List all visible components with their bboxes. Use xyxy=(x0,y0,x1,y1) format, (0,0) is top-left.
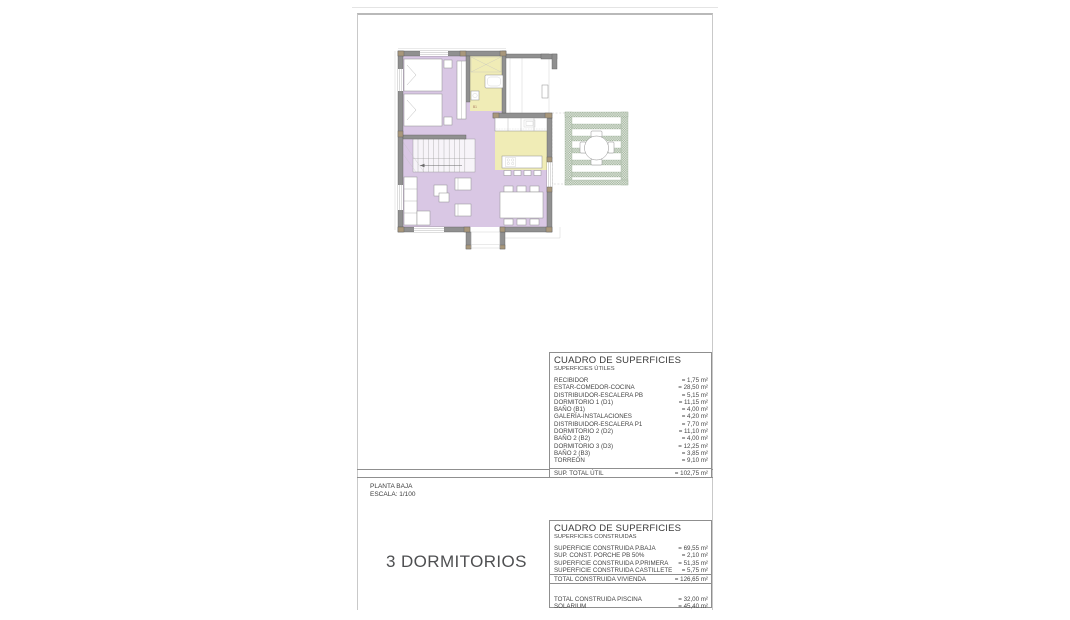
row-value: = 4,00 m² xyxy=(682,406,708,413)
row-label: ESTAR-COMEDOR-COCINA xyxy=(554,384,635,391)
nightstand-icon xyxy=(444,117,452,125)
bedroom-doorway-floor xyxy=(466,102,470,111)
total-value: = 102,75 m² xyxy=(675,470,708,477)
table-rows: SUPERFICIE CONSTRUIDA P.BAJA = 69,55 m² … xyxy=(554,545,708,574)
table-subtitle: SUPERFICIES CONSTRUIDAS xyxy=(554,534,708,541)
table-row: BAÑO 2 (B2) = 4,00 m² xyxy=(554,435,708,442)
row-value: = 7,70 m² xyxy=(682,421,708,428)
table-title: CUADRO DE SUPERFICIES xyxy=(554,524,708,534)
bathtub-icon xyxy=(485,75,503,88)
table-row: DISTRIBUIDOR-ESCALERA PB = 5,15 m² xyxy=(554,392,708,399)
row-value: = 5,15 m² xyxy=(682,392,708,399)
table-row: SUP. CONST. PORCHE PB 50% = 2,10 m² xyxy=(554,552,708,559)
row-value: = 12,25 m² xyxy=(678,443,708,450)
stool-icon xyxy=(514,171,521,176)
row-label: DORMITORIO 1 (D1) xyxy=(554,399,613,406)
row-label: SUPERFICIE CONSTRUIDA CASTILLETE xyxy=(554,567,672,574)
row-value: = 4,20 m² xyxy=(682,413,708,420)
row-value: = 4,00 m² xyxy=(682,435,708,442)
table-row: BAÑO (B1) = 4,00 m² xyxy=(554,406,708,413)
sheet-outer-edge xyxy=(352,7,718,8)
bedrooms-caption: 3 DORMITORIOS xyxy=(386,552,527,572)
plan-name: PLANTA BAJA xyxy=(370,483,416,491)
row-value: = 69,55 m² xyxy=(678,545,708,552)
table-row: SOLARIUM = 45,40 m² xyxy=(554,604,708,610)
row-value: = 28,50 m² xyxy=(678,384,708,391)
table-row: DORMITORIO 2 (D2) = 11,10 m² xyxy=(554,428,708,435)
row-value: = 45,40 m² xyxy=(678,604,708,610)
entrance-stoop xyxy=(471,232,500,248)
total-label: SUP. TOTAL ÚTIL xyxy=(554,470,604,477)
total-label: TOTAL CONSTRUIDA VIVIENDA xyxy=(554,576,646,583)
stool-icon xyxy=(534,171,541,176)
row-label: DISTRIBUIDOR-ESCALERA PB xyxy=(554,392,643,399)
row-label: RECIBIDOR xyxy=(554,377,588,384)
surfaces-table-construidas: CUADRO DE SUPERFICIES SUPERFICIES CONSTR… xyxy=(549,520,712,608)
drawing-canvas: 21 xyxy=(0,0,1070,620)
row-value: = 5,75 m² xyxy=(682,567,708,574)
table-row: SUPERFICIE CONSTRUIDA CASTILLETE = 5,75 … xyxy=(554,567,708,574)
row-value: = 2,10 m² xyxy=(682,552,708,559)
bathroom-label: B1 xyxy=(473,105,477,109)
kitchen-counter-icon xyxy=(495,118,547,131)
table-subtitle: SUPERFICIES ÚTILES xyxy=(554,366,708,373)
utility-room xyxy=(510,58,549,113)
row-value: = 3,85 m² xyxy=(682,450,708,457)
washbasin-icon xyxy=(471,91,479,100)
table-row: DISTRIBUIDOR-ESCALERA P1 = 7,70 m² xyxy=(554,421,708,428)
utility-sink-icon xyxy=(542,85,548,98)
total-value: = 126,65 m² xyxy=(675,576,708,583)
table-total-row: TOTAL CONSTRUIDA VIVIENDA = 126,65 m² xyxy=(550,574,711,584)
title-block: PLANTA BAJA ESCALA: 1/100 xyxy=(370,483,416,499)
stool-icon xyxy=(504,171,511,176)
row-label: DORMITORIO 3 (D3) xyxy=(554,443,613,450)
sheet-divider-line-bottom xyxy=(357,477,713,478)
table-row: DORMITORIO 1 (D1) = 11,15 m² xyxy=(554,399,708,406)
table-row: ESTAR-COMEDOR-COCINA = 28,50 m² xyxy=(554,384,708,391)
surfaces-table-utiles: CUADRO DE SUPERFICIES SUPERFICIES ÚTILES… xyxy=(549,352,712,477)
table-row: GALERÍA-INSTALACIONES = 4,20 m² xyxy=(554,413,708,420)
table-total-row: SUP. TOTAL ÚTIL = 102,75 m² xyxy=(550,468,711,477)
table-row: SUPERFICIE CONSTRUIDA P.BAJA = 69,55 m² xyxy=(554,545,708,552)
table-extra-rows: TOTAL CONSTRUIDA PISCINA = 32,00 m² SOLA… xyxy=(554,597,708,610)
floor-plan: 21 xyxy=(390,45,640,260)
row-label: BAÑO 2 (B2) xyxy=(554,435,590,442)
row-label: SUP. CONST. PORCHE PB 50% xyxy=(554,552,644,559)
table-title: CUADRO DE SUPERFICIES xyxy=(554,356,708,366)
table-row: SUPERFICIE CONSTRUIDA P.PRIMERA = 51,35 … xyxy=(554,560,708,567)
row-label: SUPERFICIE CONSTRUIDA P.PRIMERA xyxy=(554,560,668,567)
dining-table-icon xyxy=(500,186,543,225)
stool-icon xyxy=(524,171,531,176)
row-label: SUPERFICIE CONSTRUIDA P.BAJA xyxy=(554,545,656,552)
plan-scale: ESCALA: 1/100 xyxy=(370,491,416,499)
row-label: SOLARIUM xyxy=(554,604,586,610)
table-row: TORREÓN = 9,10 m² xyxy=(554,457,708,464)
nightstand-icon xyxy=(444,60,452,68)
pergola xyxy=(552,112,628,185)
row-value: = 51,35 m² xyxy=(678,560,708,567)
wardrobe-icon xyxy=(457,61,466,119)
table-row: DORMITORIO 3 (D3) = 12,25 m² xyxy=(554,443,708,450)
row-value: = 11,10 m² xyxy=(679,428,708,435)
row-value: = 1,75 m² xyxy=(682,377,708,384)
stairs-icon: 21 xyxy=(403,135,475,172)
row-value: = 11,15 m² xyxy=(679,399,708,406)
row-label: DORMITORIO 2 (D2) xyxy=(554,428,613,435)
row-label: TORREÓN xyxy=(554,457,585,464)
porch-roof-outline xyxy=(552,113,567,184)
row-value: = 9,10 m² xyxy=(682,457,708,464)
table-rows: RECIBIDOR = 1,75 m² ESTAR-COMEDOR-COCINA… xyxy=(554,377,708,465)
row-label: DISTRIBUIDOR-ESCALERA P1 xyxy=(554,421,642,428)
row-label: GALERÍA-INSTALACIONES xyxy=(554,413,632,420)
table-row: BAÑO 2 (B3) = 3,85 m² xyxy=(554,450,708,457)
table-row: RECIBIDOR = 1,75 m² xyxy=(554,377,708,384)
row-label: BAÑO 2 (B3) xyxy=(554,450,590,457)
row-label: BAÑO (B1) xyxy=(554,406,585,413)
